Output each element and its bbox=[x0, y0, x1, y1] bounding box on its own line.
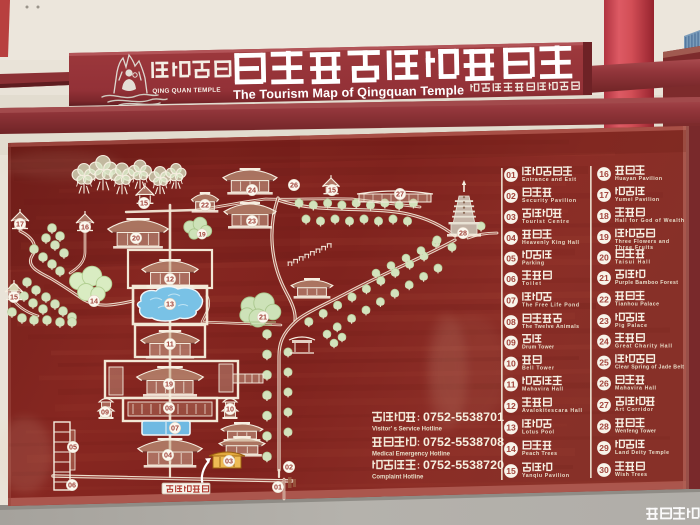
svg-text:Wenfeng Tower: Wenfeng Tower bbox=[615, 429, 656, 435]
svg-text:Parking: Parking bbox=[522, 261, 544, 267]
svg-text:27: 27 bbox=[396, 190, 404, 199]
svg-text:Complaint Hotline: Complaint Hotline bbox=[372, 475, 424, 481]
svg-text:Avalokitescara Hall: Avalokitescara Hall bbox=[522, 408, 583, 414]
svg-text:04: 04 bbox=[164, 451, 172, 460]
svg-text:Lotus Pool: Lotus Pool bbox=[522, 430, 555, 436]
svg-text:Clear Spring of Jade Belt: Clear Spring of Jade Belt bbox=[615, 365, 684, 371]
svg-text:26: 26 bbox=[599, 379, 609, 389]
svg-text:25: 25 bbox=[599, 358, 609, 368]
svg-text:Huayan Pavilion: Huayan Pavilion bbox=[615, 176, 662, 182]
svg-text:Yanqiu Pavilion: Yanqiu Pavilion bbox=[522, 473, 569, 479]
svg-text:0752-5538701: 0752-5538701 bbox=[423, 410, 504, 424]
svg-text:13: 13 bbox=[506, 423, 516, 433]
svg-text:19: 19 bbox=[165, 380, 173, 389]
svg-text:Peach Trees: Peach Trees bbox=[522, 451, 557, 457]
svg-text:Tourist Centre: Tourist Centre bbox=[522, 219, 569, 225]
svg-text::: : bbox=[417, 461, 420, 471]
svg-text:07: 07 bbox=[171, 424, 179, 433]
svg-text::: : bbox=[417, 413, 420, 423]
svg-text:11: 11 bbox=[166, 340, 174, 349]
svg-text:16: 16 bbox=[599, 169, 609, 179]
svg-text:29: 29 bbox=[599, 443, 609, 453]
svg-text:15: 15 bbox=[506, 466, 516, 476]
svg-text:04: 04 bbox=[506, 233, 516, 243]
svg-text:26: 26 bbox=[290, 181, 298, 190]
svg-text:02: 02 bbox=[285, 463, 293, 472]
svg-text:Hall for God of Wealth: Hall for God of Wealth bbox=[615, 218, 684, 224]
svg-text:Art Corridor: Art Corridor bbox=[615, 407, 653, 413]
svg-text:Mahavira Hall: Mahavira Hall bbox=[615, 386, 657, 392]
svg-text:21: 21 bbox=[599, 273, 609, 283]
svg-text:06: 06 bbox=[506, 274, 516, 284]
svg-text:20: 20 bbox=[599, 253, 609, 263]
svg-text:The Twelve Animals: The Twelve Animals bbox=[522, 324, 579, 330]
svg-text:02: 02 bbox=[506, 191, 516, 201]
svg-text:21: 21 bbox=[259, 313, 267, 322]
svg-text:Taisui Hall: Taisui Hall bbox=[615, 260, 651, 266]
svg-text:14: 14 bbox=[90, 297, 98, 306]
svg-text:0752-5538720: 0752-5538720 bbox=[423, 458, 504, 472]
svg-text:0752-5538708: 0752-5538708 bbox=[423, 435, 504, 449]
svg-text:The Free Life Pond: The Free Life Pond bbox=[522, 303, 579, 309]
svg-text:15: 15 bbox=[140, 199, 148, 208]
svg-text:Heavenly King Hall: Heavenly King Hall bbox=[522, 240, 580, 246]
svg-text:12: 12 bbox=[506, 401, 516, 411]
svg-text:15: 15 bbox=[10, 293, 18, 302]
svg-text:23: 23 bbox=[248, 217, 256, 226]
svg-text:13: 13 bbox=[166, 300, 174, 309]
svg-text:05: 05 bbox=[69, 443, 77, 452]
svg-text:Great Charity Hall: Great Charity Hall bbox=[615, 344, 673, 350]
svg-text:24: 24 bbox=[599, 337, 609, 347]
svg-text:Visitor' s Service Hotline: Visitor' s Service Hotline bbox=[372, 427, 443, 433]
svg-text:18: 18 bbox=[599, 211, 609, 221]
svg-text:23: 23 bbox=[599, 316, 609, 326]
svg-text:08: 08 bbox=[165, 404, 173, 413]
svg-text:Pig Palace: Pig Palace bbox=[615, 323, 647, 329]
svg-text:01: 01 bbox=[274, 483, 282, 492]
svg-text:19: 19 bbox=[198, 231, 206, 238]
svg-text:10: 10 bbox=[506, 359, 516, 369]
svg-text:16: 16 bbox=[81, 223, 89, 232]
svg-text:10: 10 bbox=[226, 405, 234, 414]
svg-text:22: 22 bbox=[201, 201, 209, 210]
svg-text:28: 28 bbox=[599, 422, 609, 432]
svg-text:Mahavira Hall: Mahavira Hall bbox=[522, 387, 564, 393]
svg-text:Tianhou Palace: Tianhou Palace bbox=[615, 302, 659, 308]
svg-text:28: 28 bbox=[459, 229, 467, 238]
svg-text:08: 08 bbox=[506, 317, 516, 327]
svg-text:22: 22 bbox=[599, 295, 609, 305]
svg-text:Drum Tower: Drum Tower bbox=[522, 345, 554, 351]
svg-text:QING QUAN TEMPLE: QING QUAN TEMPLE bbox=[152, 87, 221, 95]
svg-text:27: 27 bbox=[599, 400, 609, 410]
svg-text:19: 19 bbox=[599, 232, 609, 242]
svg-text:17: 17 bbox=[16, 220, 24, 229]
svg-text:01: 01 bbox=[506, 170, 516, 180]
svg-text:30: 30 bbox=[599, 465, 609, 475]
svg-text:03: 03 bbox=[506, 212, 516, 222]
svg-text:Security Pavilion: Security Pavilion bbox=[522, 198, 576, 204]
svg-text:Land Deity Temple: Land Deity Temple bbox=[615, 450, 669, 456]
svg-text:20: 20 bbox=[132, 234, 140, 243]
svg-text:12: 12 bbox=[166, 275, 174, 284]
svg-text:Medical Emergency Hotline: Medical Emergency Hotline bbox=[372, 452, 451, 458]
svg-text::: : bbox=[417, 438, 420, 448]
svg-text:09: 09 bbox=[101, 408, 109, 417]
svg-text:15: 15 bbox=[328, 186, 336, 195]
svg-text:Purple Bamboo Forest: Purple Bamboo Forest bbox=[615, 280, 678, 286]
svg-text:07: 07 bbox=[506, 296, 516, 306]
svg-text:Bell Tower: Bell Tower bbox=[522, 366, 554, 372]
svg-text:03: 03 bbox=[225, 457, 233, 466]
svg-text:Entrance and Exit: Entrance and Exit bbox=[522, 177, 576, 183]
svg-text:Yumei Pavilion: Yumei Pavilion bbox=[615, 197, 659, 203]
svg-text:24: 24 bbox=[248, 186, 256, 195]
svg-text:11: 11 bbox=[506, 380, 515, 390]
svg-text:09: 09 bbox=[506, 338, 516, 348]
svg-text:14: 14 bbox=[506, 444, 516, 454]
svg-text:06: 06 bbox=[68, 481, 76, 490]
svg-text:05: 05 bbox=[506, 254, 516, 264]
svg-text:Wish Trees: Wish Trees bbox=[615, 472, 647, 478]
svg-text:17: 17 bbox=[599, 190, 609, 200]
